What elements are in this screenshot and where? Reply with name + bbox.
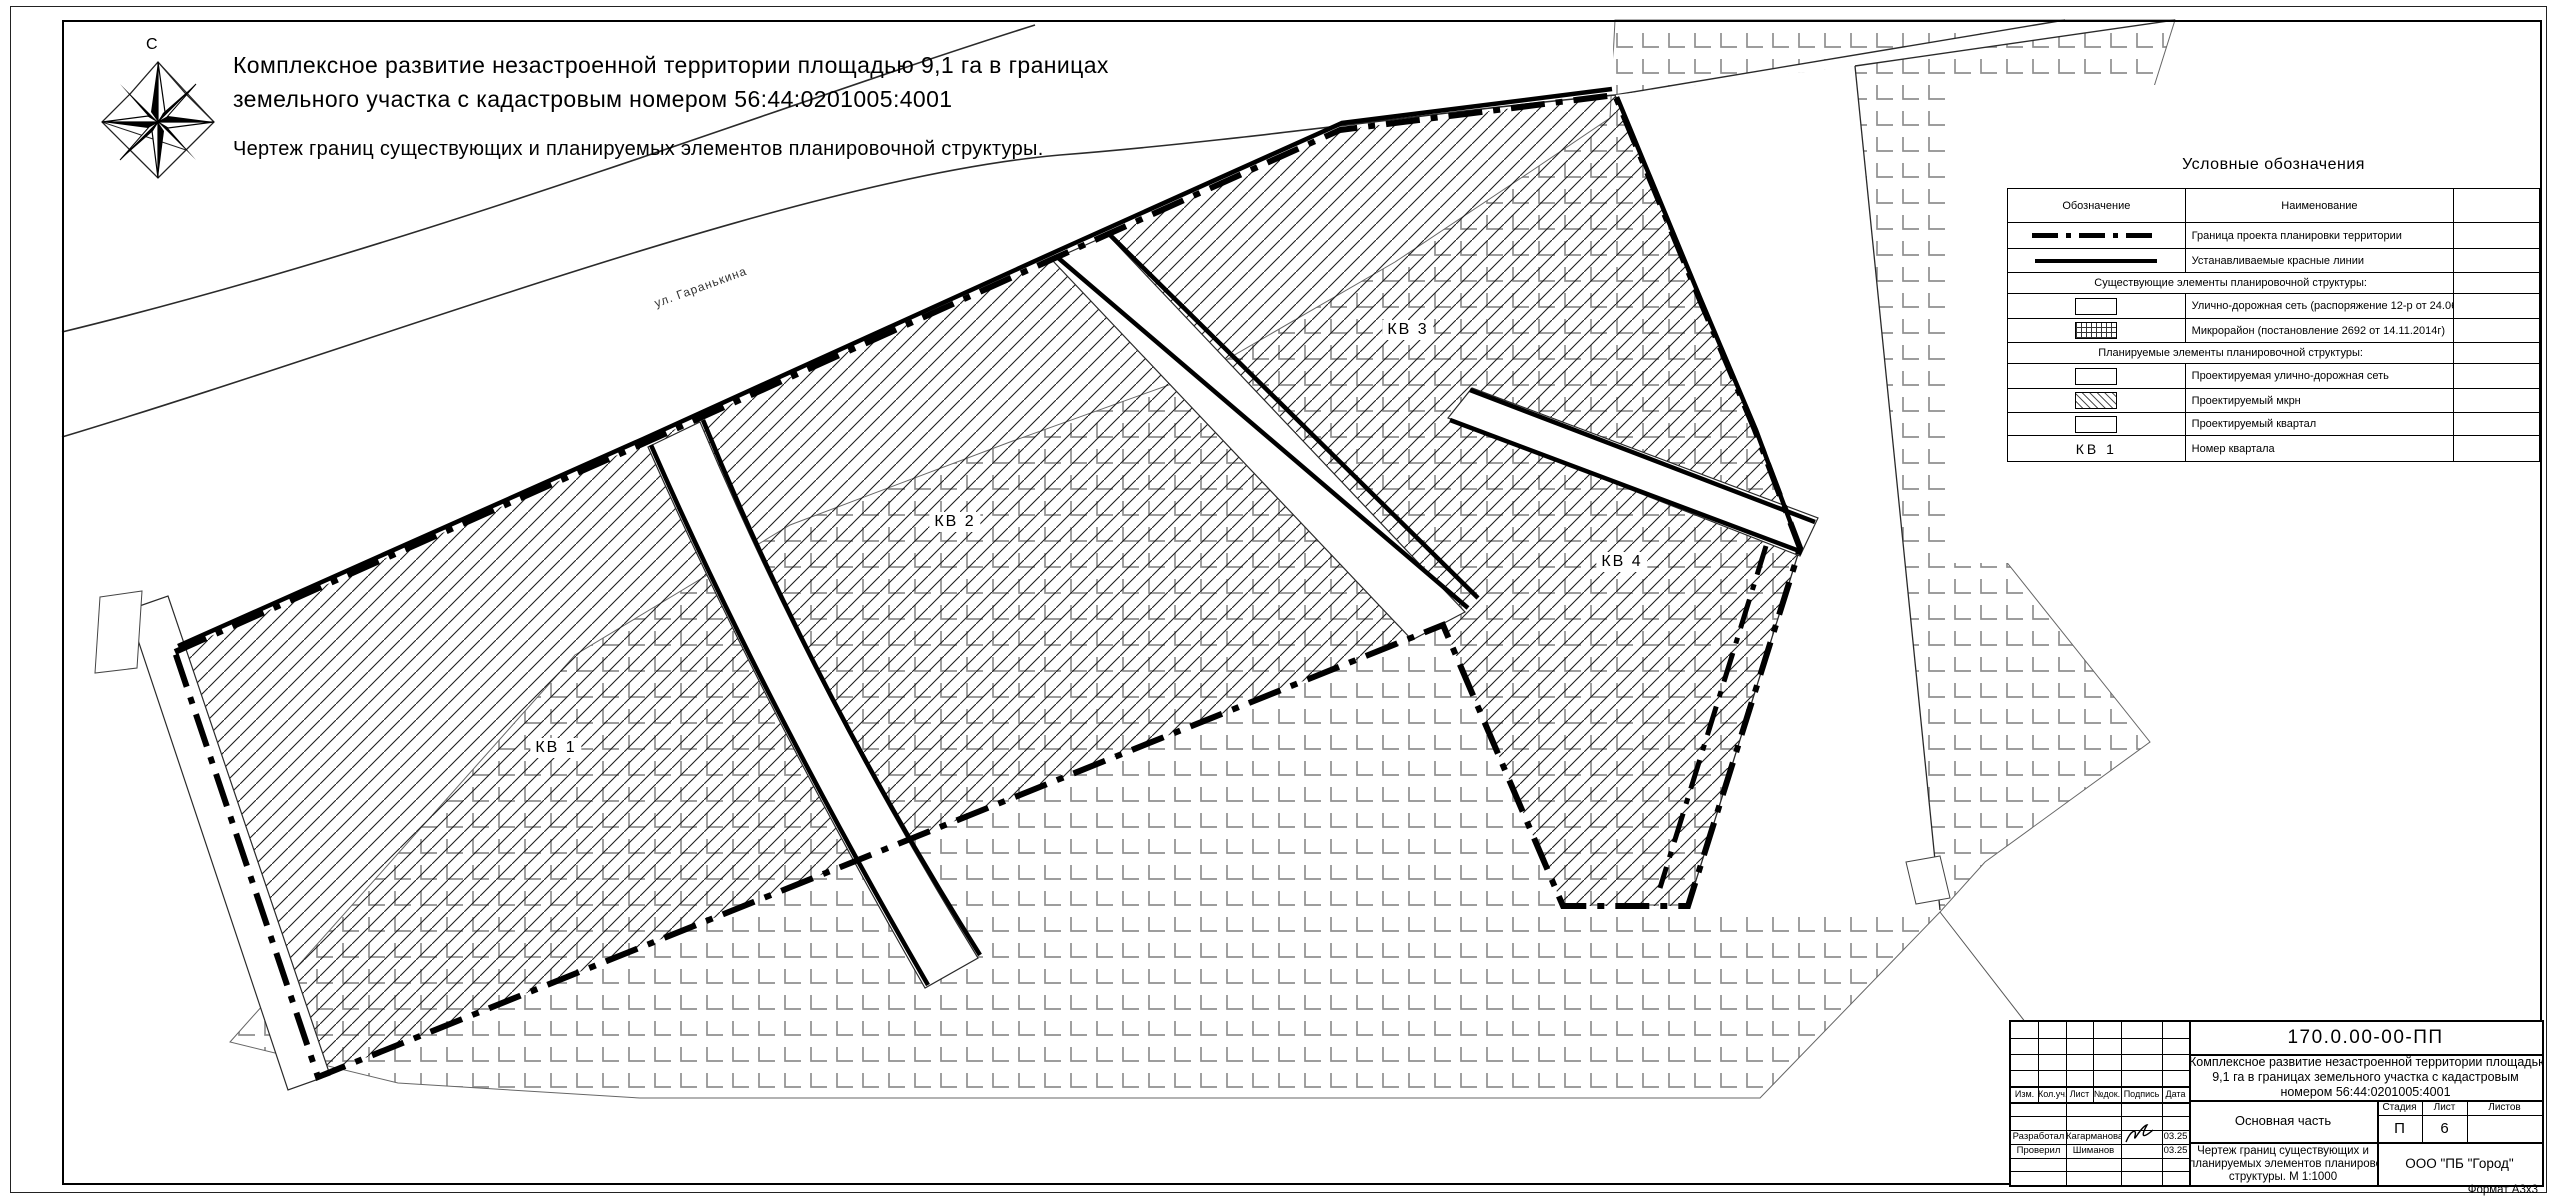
legend-row: Проектируемая улично-дорожная сеть	[2008, 364, 2540, 389]
col-koluch: Кол.уч.	[2038, 1086, 2066, 1102]
legend-row: Проектируемый мкрн	[2008, 389, 2540, 413]
legend-col-extra	[2454, 189, 2540, 223]
sheets-value	[2467, 1115, 2542, 1142]
col-izm: Изм.	[2011, 1086, 2038, 1102]
company-name: ООО "ПБ "Город"	[2377, 1142, 2542, 1185]
developed-label: Разработал	[2011, 1130, 2066, 1144]
existing-road-icon	[2075, 298, 2117, 315]
quarter-label-kv3: КВ 3	[1382, 320, 1433, 340]
north-label: С	[146, 36, 158, 54]
title-block: Изм. Кол.уч. Лист №док. Подпись Дата Раз…	[2009, 1020, 2544, 1187]
developed-name: Кагарманова	[2066, 1130, 2121, 1144]
legend-row: Улично-дорожная сеть (распоряжение 12-р …	[2008, 294, 2540, 319]
sheet-label: Лист	[2422, 1100, 2467, 1115]
legend-col-name: Наименование	[2185, 189, 2454, 223]
legend-section-row: Планируемые элементы планировочной струк…	[2008, 343, 2540, 364]
legend-row: КВ 1 Номер квартала	[2008, 436, 2540, 462]
sheets-label: Листов	[2467, 1100, 2542, 1115]
title-line-1: Комплексное развитие незастроенной терри…	[233, 48, 1133, 82]
subtitle: Чертеж границ существующих и планируемых…	[233, 136, 1133, 162]
drawing-header: Комплексное развитие незастроенной терри…	[233, 48, 1133, 162]
boundary-dashed-icon	[2032, 233, 2160, 238]
legend-row: Граница проекта планировки территории	[2008, 223, 2540, 249]
col-ndok: №док.	[2093, 1086, 2121, 1102]
quarter-label-kv2: КВ 2	[929, 512, 980, 532]
microdistrict-grid-icon	[2075, 322, 2117, 339]
section-name: Основная часть	[2189, 1100, 2377, 1142]
col-podpis: Подпись	[2121, 1086, 2162, 1102]
drawing-name: Чертеж границ существующих и планируемых…	[2189, 1145, 2377, 1184]
checked-name: Шиманов	[2066, 1144, 2121, 1158]
planned-road-icon	[2075, 368, 2117, 385]
legend-title: Условные обозначения	[2007, 156, 2540, 174]
signature-icon	[2123, 1122, 2161, 1146]
col-list: Лист	[2066, 1086, 2093, 1102]
sheet-value: 6	[2422, 1115, 2467, 1142]
quarter-label-kv1: КВ 1	[530, 738, 581, 758]
developed-date: 03.25	[2162, 1130, 2189, 1144]
legend-header-row: Обозначение Наименование	[2008, 189, 2540, 223]
legend-row: Устанавливаемые красные линии	[2008, 249, 2540, 273]
legend: Условные обозначения Обозначение Наимено…	[2007, 156, 2540, 462]
quarter-number-sample: КВ 1	[2076, 441, 2117, 457]
planned-mkrn-hatch-icon	[2075, 392, 2117, 409]
stage-label: Стадия	[2377, 1100, 2422, 1115]
legend-row: Микрорайон (постановление 2692 от 14.11.…	[2008, 319, 2540, 343]
checked-label: Проверил	[2011, 1144, 2066, 1158]
red-line-icon	[2035, 259, 2157, 263]
planned-quarter-icon	[2075, 416, 2117, 433]
legend-row: Проектируемый квартал	[2008, 413, 2540, 436]
legend-table: Обозначение Наименование Граница проекта…	[2007, 188, 2540, 462]
quarter-label-kv4: КВ 4	[1596, 552, 1647, 572]
stage-value: П	[2377, 1115, 2422, 1142]
checked-date: 03.25	[2162, 1144, 2189, 1158]
project-name: Комплексное развитие незастроенной терри…	[2189, 1055, 2542, 1100]
col-data: Дата	[2162, 1086, 2189, 1102]
format-label: Формат А3х3	[2380, 1184, 2538, 1196]
title-line-2: земельного участка с кадастровым номером…	[233, 82, 1133, 116]
legend-section-row: Существующие элементы планировочной стру…	[2008, 273, 2540, 294]
drawing-sheet: С Комплексное развитие незастроенной тер…	[0, 0, 2556, 1200]
legend-col-symbol: Обозначение	[2008, 189, 2186, 223]
doc-number: 170.0.00-00-ПП	[2189, 1022, 2542, 1054]
